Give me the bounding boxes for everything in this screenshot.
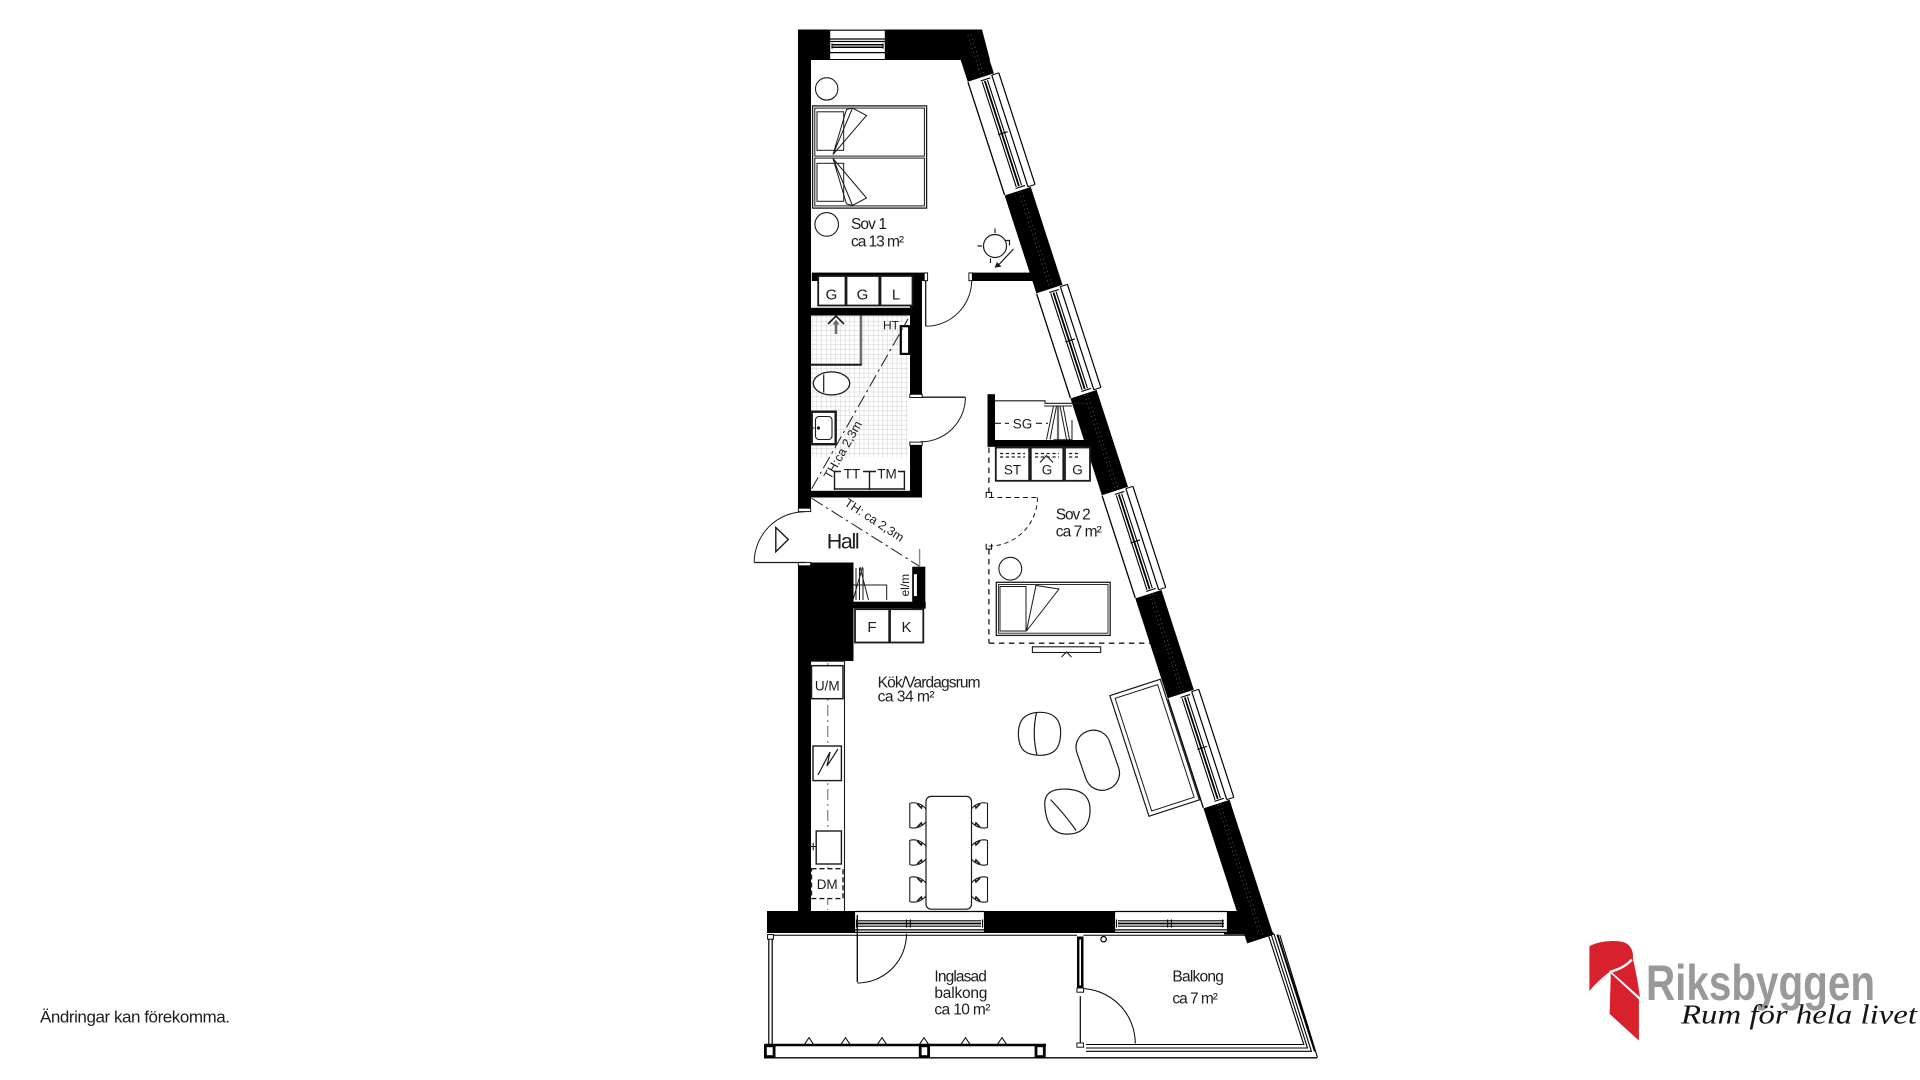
svg-text:ca 34 m²: ca 34 m² (878, 689, 935, 706)
svg-text:G: G (857, 287, 869, 304)
svg-text:DM: DM (817, 877, 838, 892)
svg-text:el/m: el/m (898, 574, 912, 597)
svg-text:TT: TT (844, 467, 861, 482)
svg-text:TM: TM (877, 467, 897, 482)
svg-text:ca 7 m²: ca 7 m² (1056, 524, 1102, 541)
svg-text:Hall: Hall (827, 530, 860, 554)
svg-text:ST: ST (1004, 463, 1021, 478)
svg-text:Sov 2: Sov 2 (1056, 507, 1091, 524)
svg-text:G: G (1042, 463, 1053, 478)
svg-text:Balkong: Balkong (1172, 969, 1224, 986)
svg-text:K: K (901, 619, 911, 636)
svg-text:Inglasad: Inglasad (934, 969, 987, 986)
svg-text:HT: HT (883, 319, 900, 333)
svg-text:SG: SG (1013, 417, 1033, 432)
svg-text:L: L (892, 287, 900, 304)
svg-text:F: F (867, 619, 876, 636)
svg-text:Rum för hela livet: Rum för hela livet (1680, 1000, 1919, 1030)
svg-text:U/M: U/M (815, 679, 840, 694)
svg-text:ca 7 m²: ca 7 m² (1172, 991, 1218, 1008)
svg-text:G: G (1072, 463, 1083, 478)
svg-text:ca 13 m²: ca 13 m² (851, 234, 904, 251)
svg-text:Sov 1: Sov 1 (851, 216, 887, 233)
svg-text:ca 10 m²: ca 10 m² (934, 1002, 990, 1019)
svg-text:balkong: balkong (934, 985, 987, 1002)
svg-text:Ändringar kan förekomma.: Ändringar kan förekomma. (40, 1008, 230, 1027)
svg-text:G: G (826, 287, 838, 304)
